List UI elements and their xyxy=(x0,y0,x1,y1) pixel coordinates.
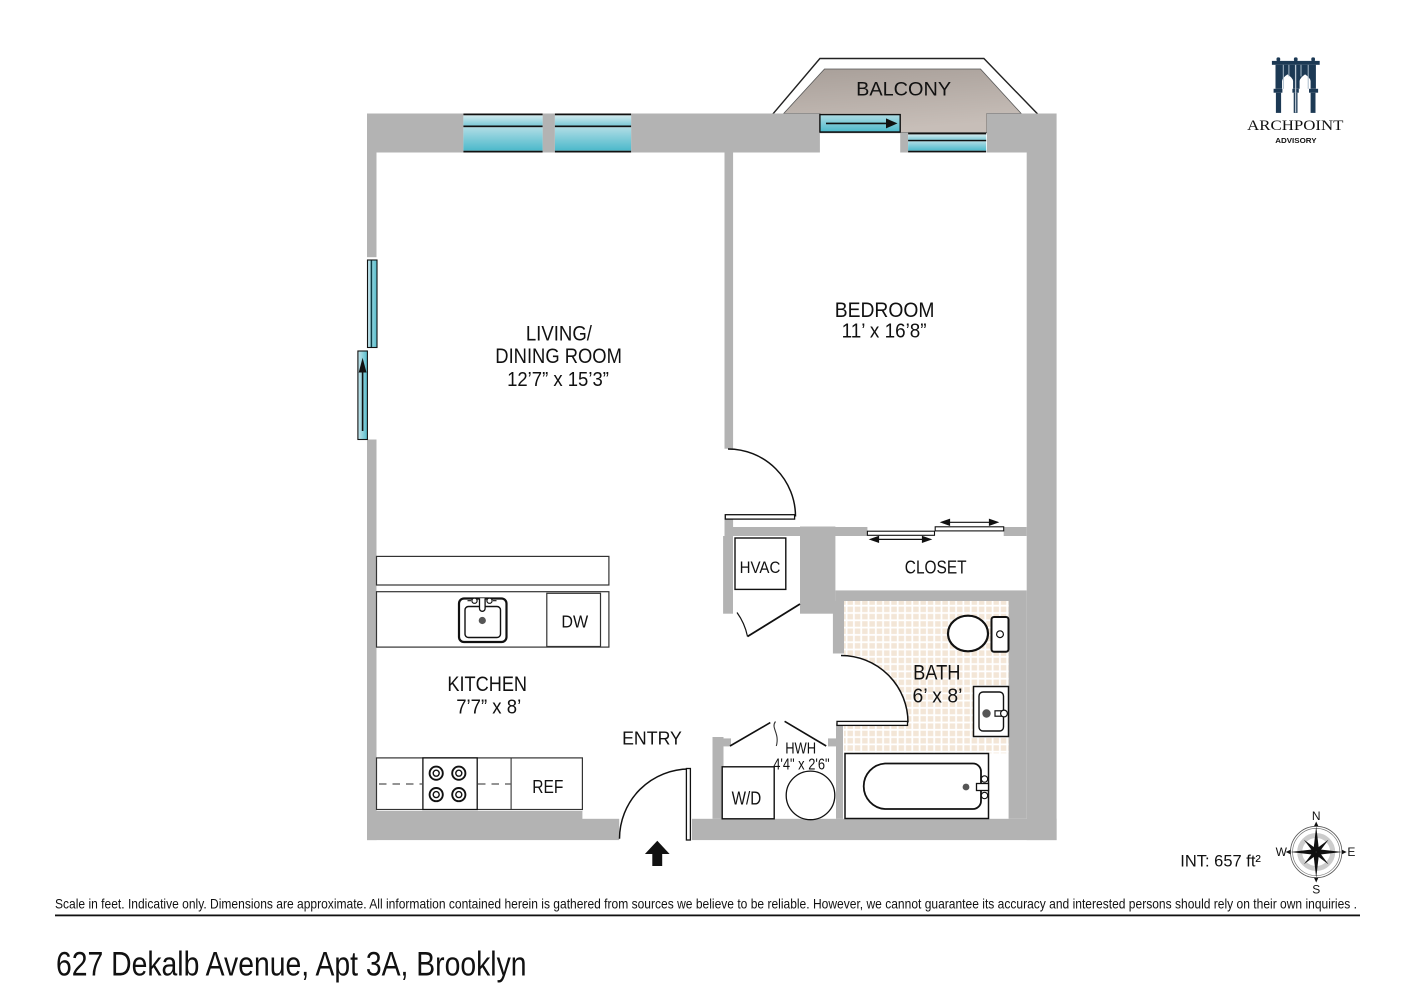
svg-text:W: W xyxy=(1276,845,1288,859)
svg-text:LIVING/: LIVING/ xyxy=(526,322,592,346)
svg-text:627 Dekalb Avenue, Apt 3A, Bro: 627 Dekalb Avenue, Apt 3A, Brooklyn xyxy=(56,946,527,984)
svg-text:12’7” x 15’3”: 12’7” x 15’3” xyxy=(507,368,609,391)
svg-text:S: S xyxy=(1312,883,1320,897)
svg-text:REF: REF xyxy=(532,777,563,797)
svg-text:HWH: HWH xyxy=(785,741,816,758)
svg-text:4'4" x 2'6": 4'4" x 2'6" xyxy=(773,757,829,774)
svg-text:CLOSET: CLOSET xyxy=(905,557,967,578)
svg-text:DINING ROOM: DINING ROOM xyxy=(495,344,622,368)
svg-text:ADVISORY: ADVISORY xyxy=(1275,138,1317,145)
svg-text:E: E xyxy=(1347,845,1355,859)
svg-text:KITCHEN: KITCHEN xyxy=(447,672,527,696)
svg-text:7’7” x 8’: 7’7” x 8’ xyxy=(456,696,521,719)
svg-text:W/D: W/D xyxy=(732,789,762,809)
svg-text:HVAC: HVAC xyxy=(740,558,781,577)
svg-text:BATH: BATH xyxy=(913,661,960,685)
svg-text:BALCONY: BALCONY xyxy=(856,79,951,100)
svg-text:ARCHPOINT: ARCHPOINT xyxy=(1247,118,1343,134)
svg-text:Scale in feet. Indicative only: Scale in feet. Indicative only. Dimensio… xyxy=(55,895,1357,911)
svg-text:INT: 657 ft²: INT: 657 ft² xyxy=(1180,852,1261,871)
svg-text:6’ x 8’: 6’ x 8’ xyxy=(913,685,963,708)
svg-text:N: N xyxy=(1312,809,1321,823)
svg-text:ENTRY: ENTRY xyxy=(622,728,682,749)
svg-text:11’ x 16’8”: 11’ x 16’8” xyxy=(842,320,927,343)
svg-text:DW: DW xyxy=(561,612,588,632)
svg-text:BEDROOM: BEDROOM xyxy=(835,298,935,322)
